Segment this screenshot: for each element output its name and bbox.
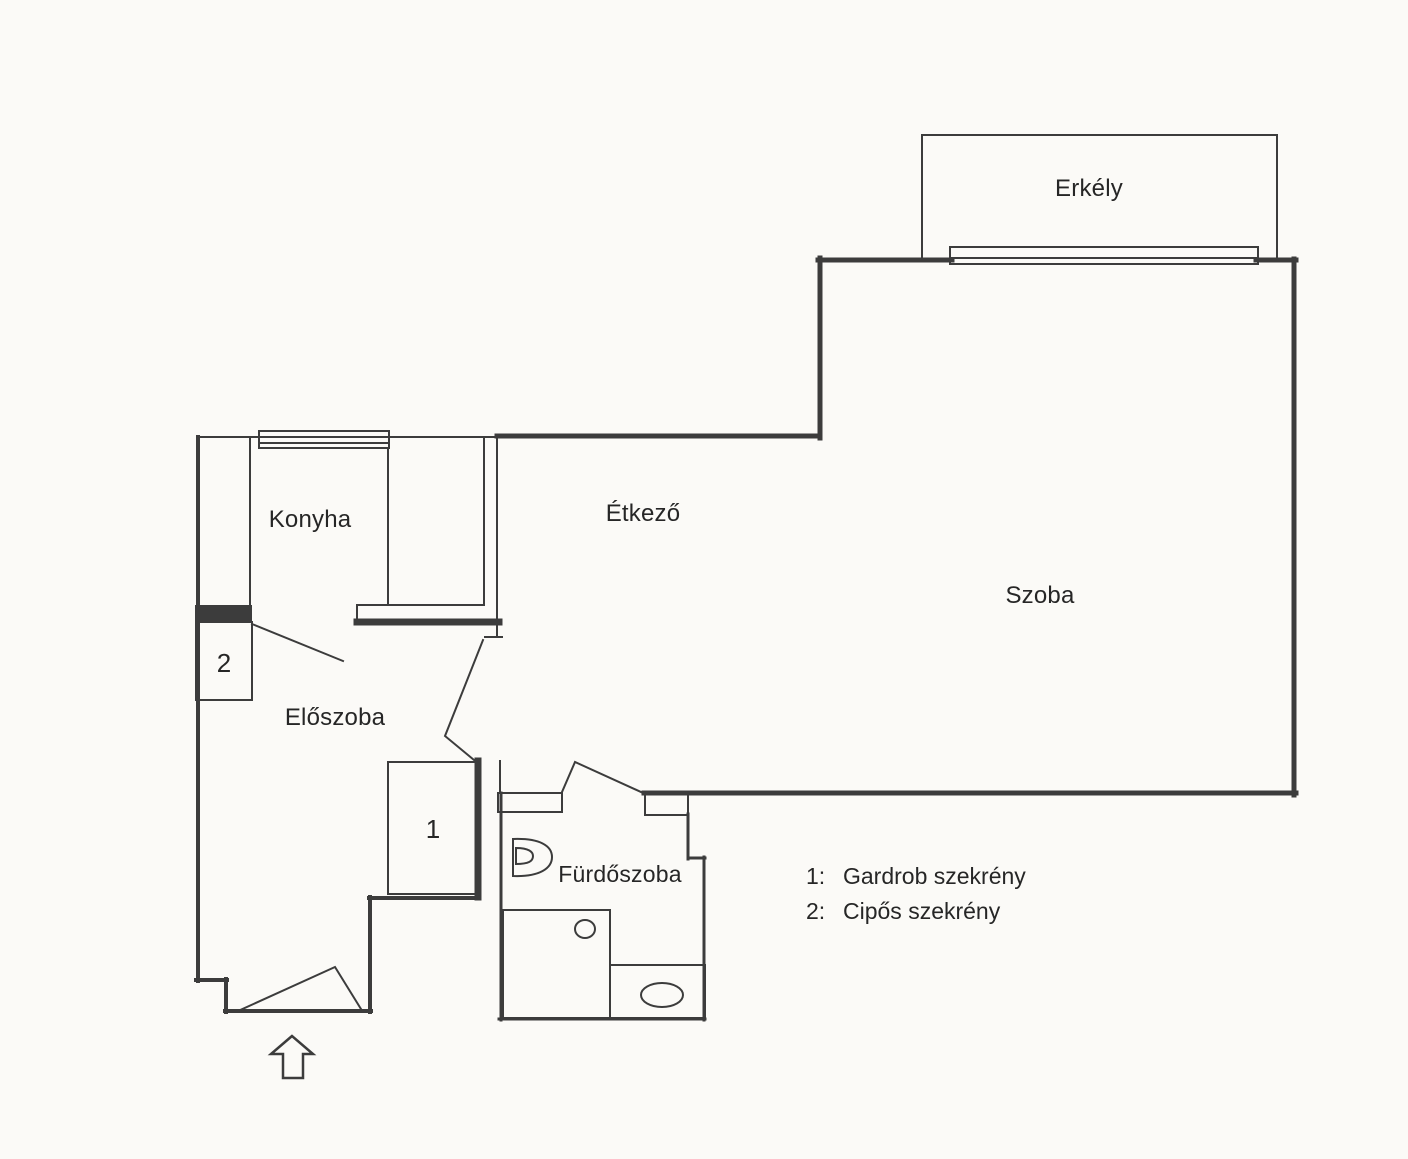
room-label-eloszoba: Előszoba — [285, 704, 386, 731]
legend-item-2-label: Cipős szekrény — [843, 898, 1001, 924]
room-label-szoba: Szoba — [1005, 582, 1075, 609]
room-label-erkely: Erkély — [1055, 175, 1123, 202]
legend-item-1-label: Gardrob szekrény — [843, 863, 1026, 889]
floor-plan-page: Erkély Szoba Étkező Konyha Előszoba Fürd… — [0, 0, 1408, 1159]
room-label-konyha: Konyha — [269, 506, 352, 533]
legend-item-2-key: 2: — [806, 898, 825, 924]
marker-wardrobe-number: 1 — [426, 814, 440, 844]
room-label-furdoszoba: Fürdőszoba — [558, 861, 681, 887]
room-label-etkezo: Étkező — [606, 500, 681, 527]
marker-shoe-cabinet-number: 2 — [217, 648, 231, 678]
wall-hall-top-band — [195, 605, 252, 622]
legend-item-1-key: 1: — [806, 863, 825, 889]
floor-plan-canvas: Erkély Szoba Étkező Konyha Előszoba Fürd… — [0, 0, 1408, 1159]
